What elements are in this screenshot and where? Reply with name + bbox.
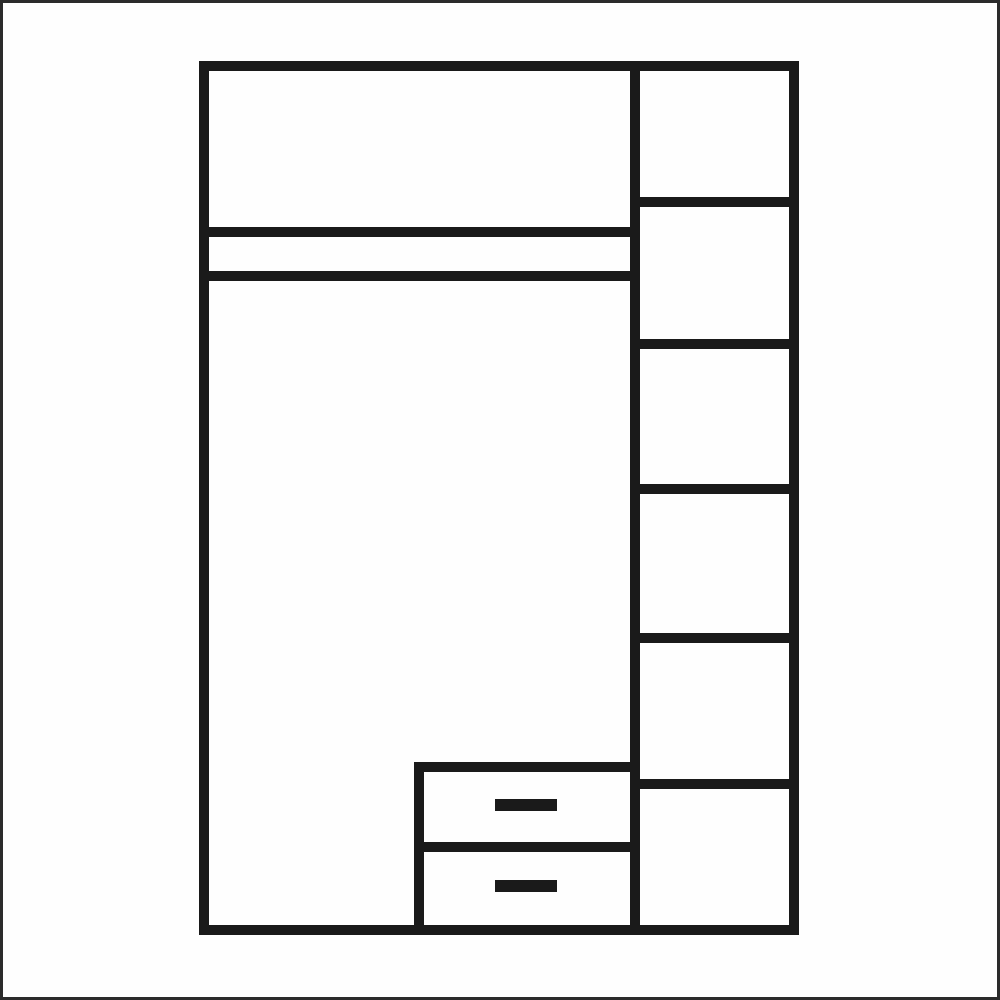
wardrobe-diagram <box>0 0 1000 1000</box>
drawer-handle-bottom <box>495 880 557 892</box>
page-background <box>0 0 1000 1000</box>
drawer-handle-top <box>495 799 557 811</box>
